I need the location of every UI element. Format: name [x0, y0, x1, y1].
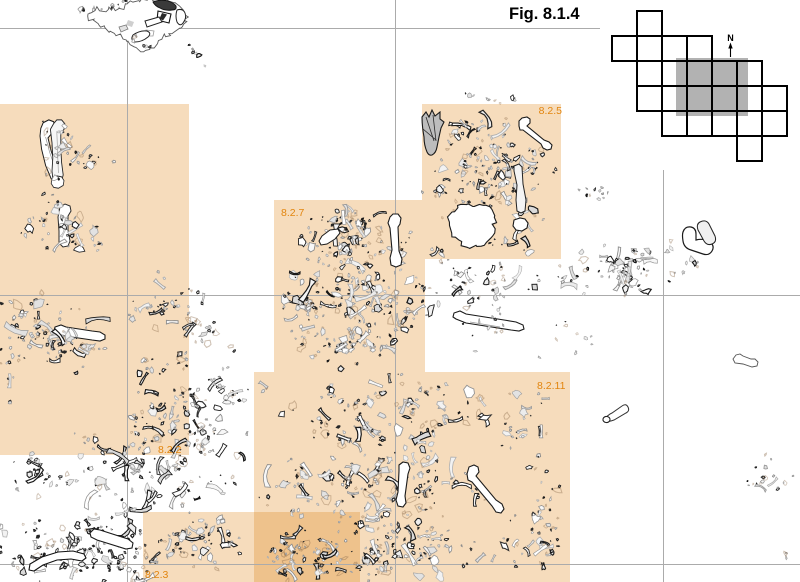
svg-text:8.2.2: 8.2.2	[158, 444, 182, 456]
svg-text:N: N	[727, 33, 734, 43]
svg-text:Fig. 8.1.4: Fig. 8.1.4	[509, 5, 580, 23]
svg-text:8.2.7: 8.2.7	[281, 207, 305, 219]
svg-text:8.2.3: 8.2.3	[145, 569, 169, 581]
svg-text:8.2.11: 8.2.11	[537, 380, 566, 392]
svg-text:8.2.5: 8.2.5	[539, 105, 563, 117]
